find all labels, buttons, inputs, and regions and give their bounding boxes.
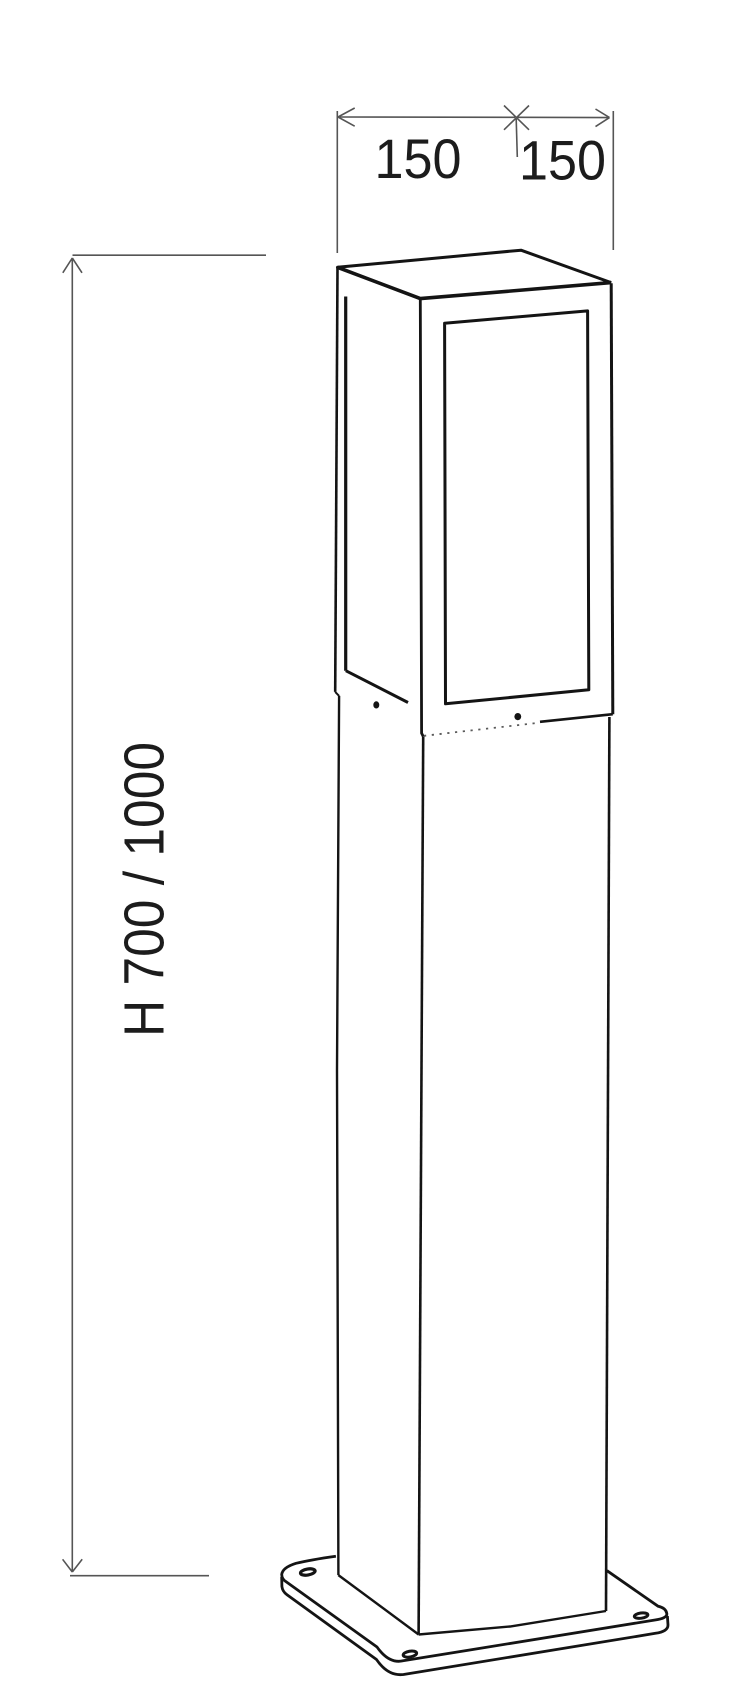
svg-text:150: 150: [519, 129, 606, 192]
svg-text:150: 150: [375, 127, 462, 190]
svg-text:H 700 / 1000: H 700 / 1000: [113, 742, 177, 1037]
